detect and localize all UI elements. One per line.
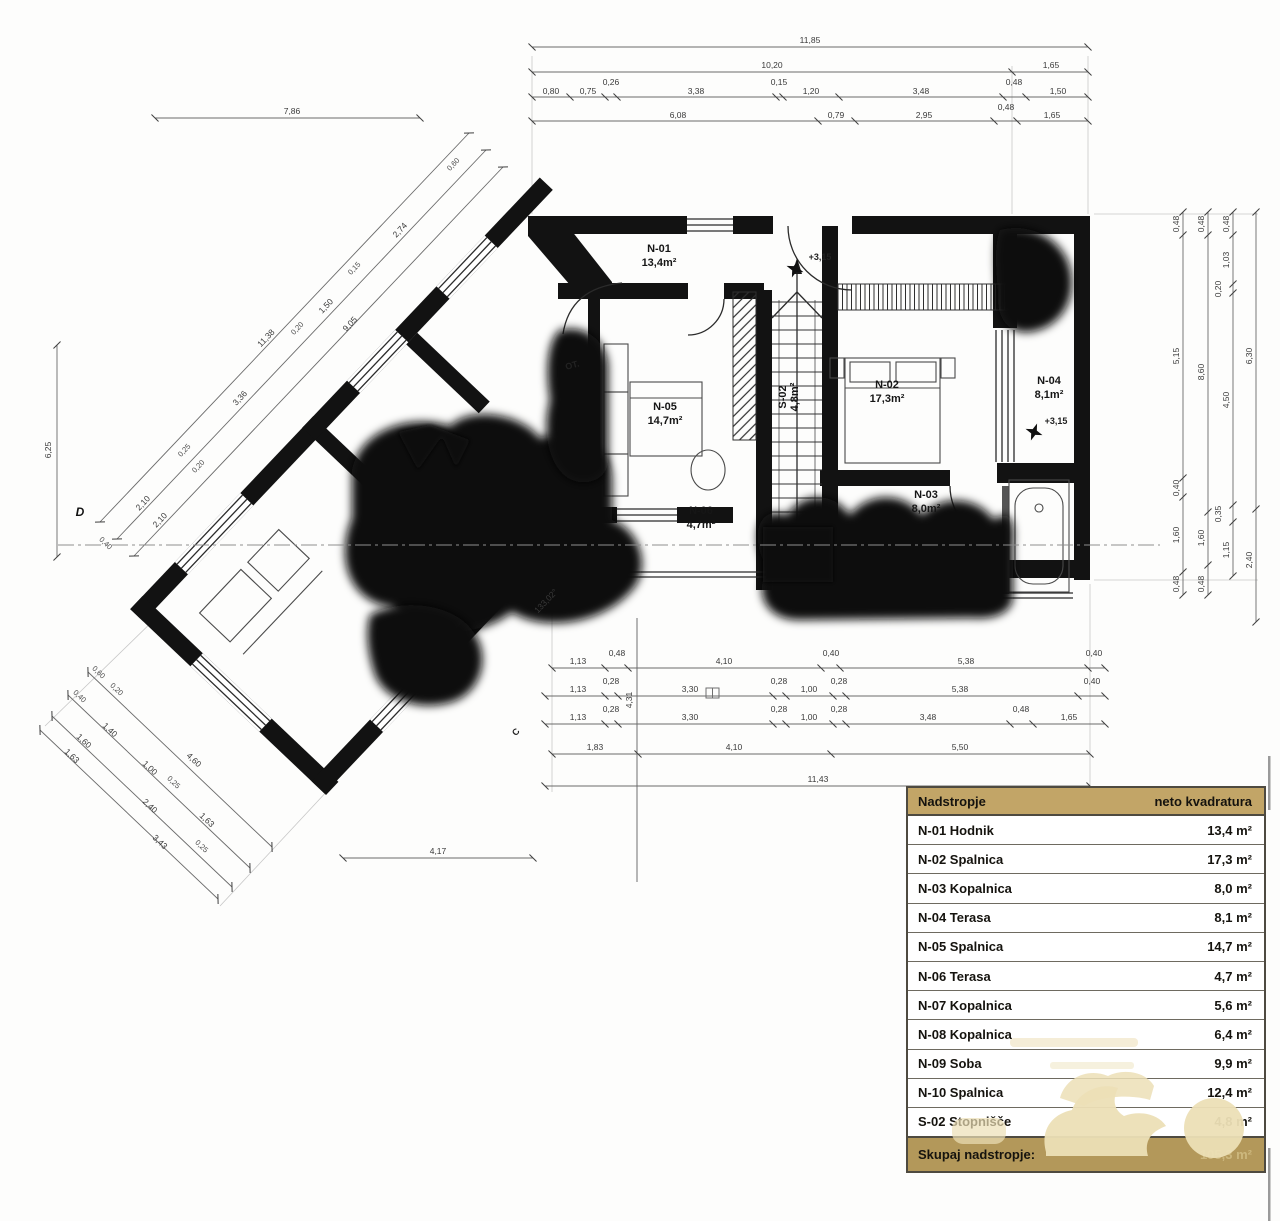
dim-label: 0,40 — [71, 688, 88, 705]
door-arc-n05 — [688, 299, 724, 335]
dim-label: 4,50 — [1221, 391, 1231, 408]
dim-label: 0,25 — [165, 774, 182, 791]
room-area-cell: 4,7 m² — [1214, 969, 1252, 984]
dim-label: 5,38 — [952, 684, 969, 694]
room-area-n03: 8,0m² — [912, 503, 941, 515]
dim-label: 0,28 — [771, 676, 788, 686]
level-star-icon — [1022, 420, 1045, 443]
table-row: N-10 Spalnica12,4 m² — [908, 1079, 1264, 1108]
dimension-labels: 11,85 10,20 1,65 0,80 0,75 0,26 3,38 0,1… — [43, 35, 1254, 856]
room-label-n05: N-05 — [653, 401, 677, 413]
room-area-cell: 4,8 m² — [1214, 1114, 1252, 1129]
dim-label: 4,10 — [716, 656, 733, 666]
dim-label: 5,50 — [952, 742, 969, 752]
room-area-cell: 8,0 m² — [1214, 881, 1252, 896]
dim-label: 0,40 — [1171, 479, 1181, 496]
table-row: N-02 Spalnica17,3 m² — [908, 845, 1264, 874]
table-row: N-05 Spalnica14,7 m² — [908, 933, 1264, 962]
dim-label: 0,28 — [771, 704, 788, 714]
room-name-cell: N-04 Terasa — [918, 910, 991, 925]
dim-label: 0,28 — [603, 704, 620, 714]
dim-label: 0,26 — [603, 77, 620, 87]
dim-label: 0,48 — [609, 648, 626, 658]
dim-label: 9,05 — [341, 314, 360, 333]
dim-label: 0,20 — [1213, 280, 1223, 297]
room-label-n02: N-02 — [875, 379, 899, 391]
dim-label: 1,50 — [1050, 86, 1067, 96]
room-area-cell: 17,3 m² — [1207, 852, 1252, 867]
dim-label: 11,85 — [800, 35, 821, 45]
room-area-n05: 14,7m² — [648, 415, 683, 427]
room-area-cell: 6,4 m² — [1214, 1027, 1252, 1042]
dim-label: 0,40 — [823, 648, 840, 658]
dim-label: 1,40 — [101, 721, 120, 740]
dim-label: 3,30 — [682, 684, 699, 694]
dim-label: 3,43 — [151, 833, 170, 852]
dim-label: 0,15 — [346, 260, 363, 277]
section-marker-d: D — [76, 505, 85, 519]
dim-label: 8,60 — [1196, 363, 1206, 380]
level-value-stairs: +3,15 — [809, 252, 832, 262]
table-header-title: Nadstropje — [918, 794, 986, 809]
room-name-cell: N-08 Kopalnica — [918, 1027, 1012, 1042]
room-area-n04: 8,1m² — [1035, 389, 1064, 401]
room-label-n06: N-06 — [689, 505, 713, 517]
dim-label: 0,48 — [1171, 575, 1181, 592]
room-label-s02: S-02 — [777, 385, 789, 408]
dim-label: 1,63 — [63, 747, 82, 766]
dim-label: 1,13 — [570, 656, 587, 666]
dim-label: 2,40 — [1244, 551, 1254, 568]
dim-label: 2,74 — [391, 220, 410, 239]
area-legend-table: Nadstropje neto kvadratura N-01 Hodnik13… — [906, 786, 1266, 1173]
table-footer-value: 105,3 m² — [1200, 1147, 1252, 1162]
dim-label: 1,00 — [801, 712, 818, 722]
dim-label: 0,20 — [190, 458, 207, 475]
table-row: N-08 Kopalnica6,4 m² — [908, 1020, 1264, 1049]
dim-label: 11,43 — [808, 774, 829, 784]
room-area-cell: 5,6 m² — [1214, 998, 1252, 1013]
room-name-cell: N-09 Soba — [918, 1056, 982, 1071]
table-footer: Skupaj nadstropje: 105,3 m² — [908, 1136, 1264, 1171]
dim-label: 0,28 — [831, 676, 848, 686]
dim-label: 10,20 — [761, 60, 783, 70]
level-star-icon — [783, 257, 806, 280]
room-area-cell: 9,9 m² — [1214, 1056, 1252, 1071]
room-area-s02: 4,8m² — [789, 382, 801, 411]
table-header-col2: neto kvadratura — [1154, 794, 1252, 809]
dim-label: 0,15 — [771, 77, 788, 87]
dim-label: 1,00 — [801, 684, 818, 694]
dim-label: 3,36 — [231, 388, 250, 407]
dim-label: 0,28 — [831, 704, 848, 714]
dim-label: 0,79 — [828, 110, 845, 120]
section-marker-c: C — [510, 726, 522, 738]
dim-label: 1,63 — [198, 811, 217, 830]
dim-label: 0,20 — [289, 320, 306, 337]
dim-label: 0,40 — [1084, 676, 1101, 686]
dim-label: 0,48 — [1221, 215, 1231, 232]
room-area-cell: 13,4 m² — [1207, 823, 1252, 838]
room-area-cell: 14,7 m² — [1207, 939, 1252, 954]
dim-label: 4,17 — [430, 846, 447, 856]
dim-label: 3,48 — [913, 86, 930, 96]
table-row: N-03 Kopalnica8,0 m² — [908, 874, 1264, 903]
dim-label: 0,48 — [1013, 704, 1030, 714]
dim-label: 7,86 — [284, 106, 301, 116]
dim-label: 1,00 — [141, 759, 160, 778]
room-name-cell: N-05 Spalnica — [918, 939, 1003, 954]
table-row: N-06 Terasa4,7 m² — [908, 962, 1264, 991]
room-name-cell: N-07 Kopalnica — [918, 998, 1012, 1013]
dim-label: 0,48 — [1171, 215, 1181, 232]
dim-label: 11,38 — [255, 327, 277, 349]
wing-furniture — [200, 530, 323, 655]
dim-label: 0,25 — [176, 442, 193, 459]
table-body: N-01 Hodnik13,4 m²N-02 Spalnica17,3 m²N-… — [908, 816, 1264, 1136]
table-row: N-04 Terasa8,1 m² — [908, 904, 1264, 933]
dim-label: 3,38 — [688, 86, 705, 96]
room-name-cell: S-02 Stopnišče — [918, 1114, 1011, 1129]
dim-label: 0,60 — [90, 664, 107, 681]
dim-label: 4,31 — [624, 691, 634, 708]
dim-label: 4,10 — [726, 742, 743, 752]
room-area-cell: 12,4 m² — [1207, 1085, 1252, 1100]
dim-label: 1,20 — [803, 86, 820, 96]
wardrobe — [838, 284, 1008, 310]
dim-label: 2,40 — [141, 797, 160, 816]
room-area-n06: 4,7m² — [687, 519, 716, 531]
room-name-cell: N-01 Hodnik — [918, 823, 994, 838]
table-row: S-02 Stopnišče4,8 m² — [908, 1108, 1264, 1136]
room-area-n01: 13,4m² — [642, 257, 677, 269]
level-value-terrace: +3,15 — [1045, 416, 1068, 426]
dim-label: 6,30 — [1244, 347, 1254, 364]
dim-label: 3,30 — [682, 712, 699, 722]
dim-label: 6,25 — [43, 441, 53, 458]
table-row: N-07 Kopalnica5,6 m² — [908, 991, 1264, 1020]
dim-label: 0,40 — [97, 535, 114, 552]
dim-label: 0,80 — [543, 86, 560, 96]
dim-label: 0,40 — [1086, 648, 1103, 658]
dim-label: 1,13 — [570, 712, 587, 722]
dim-label: 0,28 — [603, 676, 620, 686]
page-edge-mark — [1268, 1148, 1271, 1221]
dim-label: 0,60 — [445, 156, 462, 173]
dim-label: 2,10 — [134, 493, 153, 512]
room-area-n02: 17,3m² — [870, 393, 905, 405]
room-name-cell: N-02 Spalnica — [918, 852, 1003, 867]
table-row: N-09 Soba9,9 m² — [908, 1050, 1264, 1079]
dim-label: 1,60 — [75, 732, 94, 751]
table-footer-label: Skupaj nadstropje: — [918, 1147, 1035, 1162]
dim-label: 1,50 — [317, 296, 336, 315]
chair-n05 — [691, 450, 725, 490]
dim-label: 1,13 — [570, 684, 587, 694]
floorplan-page: 11,85 10,20 1,65 0,80 0,75 0,26 3,38 0,1… — [0, 0, 1280, 1221]
room-label-n04: N-04 — [1037, 375, 1062, 387]
bed-n02 — [845, 358, 940, 463]
table-header: Nadstropje neto kvadratura — [908, 788, 1264, 816]
room-label-n01: N-01 — [647, 243, 671, 255]
dim-label: 0,48 — [998, 102, 1015, 112]
dim-label: 2,95 — [916, 110, 933, 120]
dim-label: 1,65 — [1044, 110, 1061, 120]
room-area-cell: 8,1 m² — [1214, 910, 1252, 925]
room-label-n03: N-03 — [914, 489, 938, 501]
dim-label: 5,38 — [958, 656, 975, 666]
dim-label: 1,65 — [1043, 60, 1060, 70]
dim-label: 0,25 — [193, 838, 210, 855]
page-edge-mark — [1268, 756, 1271, 810]
dim-label: 1,60 — [1196, 529, 1206, 546]
dim-label: 1,15 — [1221, 541, 1231, 558]
room-name-cell: N-10 Spalnica — [918, 1085, 1003, 1100]
dim-label: 1,65 — [1061, 712, 1078, 722]
dim-label: 5,15 — [1171, 347, 1181, 364]
dim-label: 6,08 — [670, 110, 687, 120]
room-name-cell: N-03 Kopalnica — [918, 881, 1012, 896]
dim-label: 3,48 — [920, 712, 937, 722]
dim-label: 0,48 — [1196, 215, 1206, 232]
dim-label: 1,03 — [1221, 251, 1231, 268]
dim-label: 1,83 — [587, 742, 604, 752]
dim-label: 0,20 — [108, 681, 125, 698]
table-row: N-01 Hodnik13,4 m² — [908, 816, 1264, 845]
dim-label: 2,10 — [151, 510, 170, 529]
dim-label: 0,48 — [1006, 77, 1023, 87]
dim-label: 0,48 — [1196, 575, 1206, 592]
room-name-cell: N-06 Terasa — [918, 969, 991, 984]
dim-label: 0,75 — [580, 86, 597, 96]
dim-label: 1,60 — [1171, 526, 1181, 543]
dim-label: 0,35 — [1213, 505, 1223, 522]
